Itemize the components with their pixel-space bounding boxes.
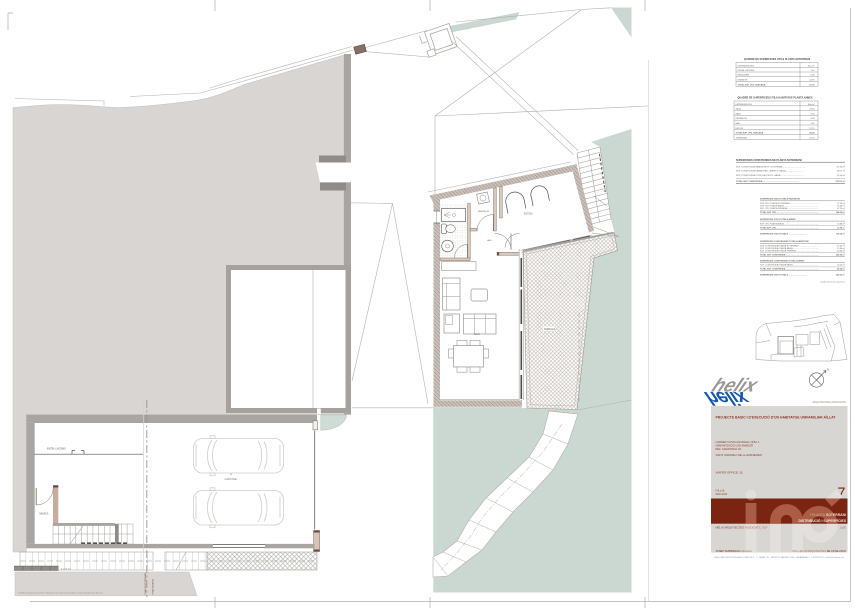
svg-text:INSTAL·LACIONS: INSTAL·LACIONS — [47, 448, 66, 451]
svg-text:PLANTA SOTERRANI: PLANTA SOTERRANI — [144, 573, 147, 595]
svg-text:I PLANTA SOTERRANI: I PLANTA SOTERRANI — [810, 513, 846, 517]
svg-text:SUP. UTIL PLANTA PRIMERA .....: SUP. UTIL PLANTA PRIMERA ...............… — [760, 207, 819, 210]
svg-text:QUADRE DE SUPERFICIES UTILS PL: QUADRE DE SUPERFICIES UTILS PLANTA SOTER… — [744, 58, 811, 61]
svg-text:SUPERFICIES CONSTRUIDES TOTALS: SUPERFICIES CONSTRUIDES TOTALS HABITATGE — [760, 240, 809, 243]
svg-text:REF. CADASTRAL 03: REF. CADASTRAL 03 — [716, 447, 742, 451]
svg-text:TOTAL SUP. UTIL ..............: TOTAL SUP. UTIL ........................… — [760, 211, 819, 214]
svg-text:MUSICA: MUSICA — [40, 513, 49, 516]
svg-text:SANT ANDREU DE LLAVANERES: SANT ANDREU DE LLAVANERES — [716, 453, 762, 457]
svg-text:SUPERFICIES UTILS TOTALS ANNEX: SUPERFICIES UTILS TOTALS ANNEX — [760, 218, 796, 221]
svg-text:97.30 m²: 97.30 m² — [837, 244, 845, 247]
svg-text:26.54 m²: 26.54 m² — [837, 264, 845, 267]
svg-text:44.95: 44.95 — [809, 79, 815, 81]
svg-text:SUP. CONSTRUIDA HABITATGE Pl.: SUP. CONSTRUIDA HABITATGE Pl. SOTERRANI.… — [736, 165, 805, 168]
svg-text:TOTAL SUP. CONSTRUIDA ........: TOTAL SUP. CONSTRUIDA ..................… — [760, 253, 819, 256]
svg-text:el nivell de pavimentacio exte: el nivell de pavimentacio exterior i urb… — [18, 592, 103, 595]
svg-text:ESTUDI: ESTUDI — [736, 128, 744, 130]
svg-text:JOSEP SUBIRANAS arquitecte: JOSEP SUBIRANAS arquitecte — [716, 549, 753, 553]
svg-text:Sup m²: Sup m² — [808, 64, 815, 67]
svg-text:SUPERFICIES CONSTRUIDES DE PLA: SUPERFICIES CONSTRUIDES DE PLANTA SOTERR… — [736, 159, 802, 162]
svg-text:29.50: 29.50 — [809, 109, 815, 111]
svg-text:57.78 m²: 57.78 m² — [837, 202, 845, 205]
svg-text:ESTUDI: ESTUDI — [524, 214, 533, 216]
svg-text:38.87 m²: 38.87 m² — [837, 170, 846, 173]
svg-text:TOTAL SUP. ÚTIL TANCADA: TOTAL SUP. ÚTIL TANCADA — [736, 132, 764, 135]
svg-text:TOTAL SUP. UTIL ..............: TOTAL SUP. UTIL ........................… — [760, 226, 819, 229]
svg-text:TOTAL SUP. CONSTRUIDA ........: TOTAL SUP. CONSTRUIDA ..................… — [760, 268, 819, 271]
svg-text:G: G — [230, 473, 232, 476]
svg-text:SUPERFICIES CONSTRUIDES TOTALS: SUPERFICIES CONSTRUIDES TOTALS ANNEX — [760, 259, 805, 262]
svg-text:157.53 m²: 157.53 m² — [836, 180, 846, 183]
svg-text:SUP. CONSTRUIDA PLANTA PRIMERA: SUP. CONSTRUIDA PLANTA PRIMERA .........… — [760, 250, 819, 253]
svg-text:228.98 m²: 228.98 m² — [836, 253, 845, 256]
svg-text:PROJECTE BASIC I D'EXECUCIÓ D': PROJECTE BASIC I D'EXECUCIÓ D'UN HABITAT… — [716, 415, 837, 420]
svg-text:85.08: 85.08 — [809, 133, 815, 135]
svg-text:XMFER OFFICE, SL: XMFER OFFICE, SL — [716, 470, 744, 474]
svg-text:178.38 m²: 178.38 m² — [836, 232, 845, 235]
svg-text:26.54 m²: 26.54 m² — [837, 268, 845, 271]
svg-text:N: N — [827, 368, 829, 372]
svg-text:DISTRIBUCIÓ I SUPERFÍCIES: DISTRIBUCIÓ I SUPERFÍCIES — [799, 518, 847, 523]
svg-text:97.30 m²: 97.30 m² — [837, 165, 846, 168]
svg-text:47.26 m²: 47.26 m² — [837, 207, 845, 210]
svg-text:57.78: 57.78 — [809, 84, 815, 86]
svg-text:COL·LEGI D'ARQUITECTES DE CATA: COL·LEGI D'ARQUITECTES DE CATALUNYA — [792, 549, 846, 553]
svg-text:QUADRE DE SUPERFICIES UTILS HA: QUADRE DE SUPERFICIES UTILS HABITATGE PL… — [737, 96, 812, 99]
svg-text:SUPERFICIES UTILS TOTALS .....: SUPERFICIES UTILS TOTALS ...............… — [760, 232, 807, 235]
svg-text:BANY: BANY — [736, 112, 742, 115]
svg-text:INSTAL·LACIONS: INSTAL·LACIONS — [738, 69, 756, 72]
svg-text:SUP. UTIL PLANTA SOTERRANI ...: SUP. UTIL PLANTA SOTERRANI .............… — [760, 202, 819, 205]
svg-text:SUPERFICIES UTILS TOTALS HABIT: SUPERFICIES UTILS TOTALS HABITATGE — [760, 198, 801, 201]
svg-text:SUPERFICIES UTILS TOTALS .....: SUPERFICIES UTILS TOTALS ...............… — [760, 274, 807, 277]
svg-text:HÈLIX ARQUITECTES ASSOCIATS, S: HÈLIX ARQUITECTES ASSOCIATS, SLP — [716, 524, 768, 529]
svg-text:32.16: 32.16 — [809, 137, 815, 139]
svg-text:13.88 m²: 13.88 m² — [837, 226, 845, 229]
svg-text:MAIG 2024: MAIG 2024 — [716, 493, 728, 496]
svg-text:HALL: HALL — [736, 122, 742, 125]
svg-text:56.84 m²: 56.84 m² — [837, 250, 845, 253]
svg-text:MAGATZEM: MAGATZEM — [738, 74, 750, 77]
svg-text:FULL 08: FULL 08 — [716, 490, 725, 492]
svg-text:TOTAL SUP. CONSTRUIDA.........: TOTAL SUP. CONSTRUIDA...................… — [736, 180, 800, 183]
svg-text:PLANTA BAIXA: PLANTA BAIXA — [151, 579, 154, 595]
svg-text:SUP. UTIL PLANTA BAIXA .......: SUP. UTIL PLANTA BAIXA .................… — [760, 205, 819, 208]
svg-text:ARQUITECTES ASSOCIATS: ARQUITECTES ASSOCIATS — [812, 400, 846, 404]
svg-text:RENTADOR: RENTADOR — [478, 210, 490, 213]
svg-text:0 1 2 3 4 5: 0 1 2 3 4 5 — [61, 569, 71, 571]
svg-text:DEPENDENCIES: DEPENDENCIES — [738, 65, 755, 67]
svg-text:255.52 m²: 255.52 m² — [836, 274, 845, 277]
svg-text:59.46 m²: 59.46 m² — [837, 205, 845, 208]
svg-text:SUP. CONSTRUIDA PLANTA SOTERRA: SUP. CONSTRUIDA PLANTA SOTERRANI .......… — [760, 244, 819, 247]
svg-text:DEPENDENCIES: DEPENDENCIES — [736, 104, 753, 106]
svg-text:13.70: 13.70 — [809, 128, 815, 130]
svg-text:74.84 m²: 74.84 m² — [837, 247, 845, 250]
svg-text:GARATGE: GARATGE — [225, 478, 237, 481]
svg-text:13.88 m²: 13.88 m² — [837, 223, 845, 226]
svg-text:164.50 m²: 164.50 m² — [836, 211, 845, 214]
svg-text:SUP. CONSTRUIDA PORXO-ACCES Pl: SUP. CONSTRUIDA PORXO-ACCES Pl. BAIXA...… — [736, 174, 805, 177]
svg-text:TERRAÇA: TERRAÇA — [544, 328, 555, 331]
svg-text:TOTAL SUP. ÚTIL TANCADA: TOTAL SUP. ÚTIL TANCADA — [738, 83, 766, 86]
svg-text:SALA: SALA — [736, 108, 742, 111]
svg-text:HELIX ARQUITECTES ASSOCIATS SL: HELIX ARQUITECTES ASSOCIATS SLP - C. GRA… — [714, 556, 844, 559]
svg-text:SUP. UTIL PLANTA BAIXA .......: SUP. UTIL PLANTA BAIXA .................… — [760, 223, 819, 226]
svg-text:22.36 m²: 22.36 m² — [837, 174, 846, 177]
svg-text:SUP. CONSTRUIDA PLANTA BAIXA .: SUP. CONSTRUIDA PLANTA BAIXA ...........… — [760, 264, 818, 267]
svg-text:HALL: HALL — [487, 239, 493, 242]
svg-text:SUP. CONSTRUIDA DAVANTPATI - A: SUP. CONSTRUIDA DAVANTPATI - ANNEX P. BA… — [736, 170, 803, 173]
svg-text:1/100: 1/100 — [840, 525, 847, 529]
svg-text:SALA: SALA — [474, 333, 480, 336]
svg-text:Quadres generals superficies: Quadres generals superficies — [820, 281, 845, 284]
svg-text:GARATGE: GARATGE — [738, 78, 749, 81]
svg-text:TERRASSA: TERRASSA — [736, 136, 748, 139]
svg-text:Sup m²: Sup m² — [808, 103, 815, 106]
svg-text:SUP. CONSTRUIDA PLANTA BAIXA .: SUP. CONSTRUIDA PLANTA BAIXA ...........… — [760, 247, 818, 250]
svg-text:RENTADOR: RENTADOR — [736, 117, 748, 120]
